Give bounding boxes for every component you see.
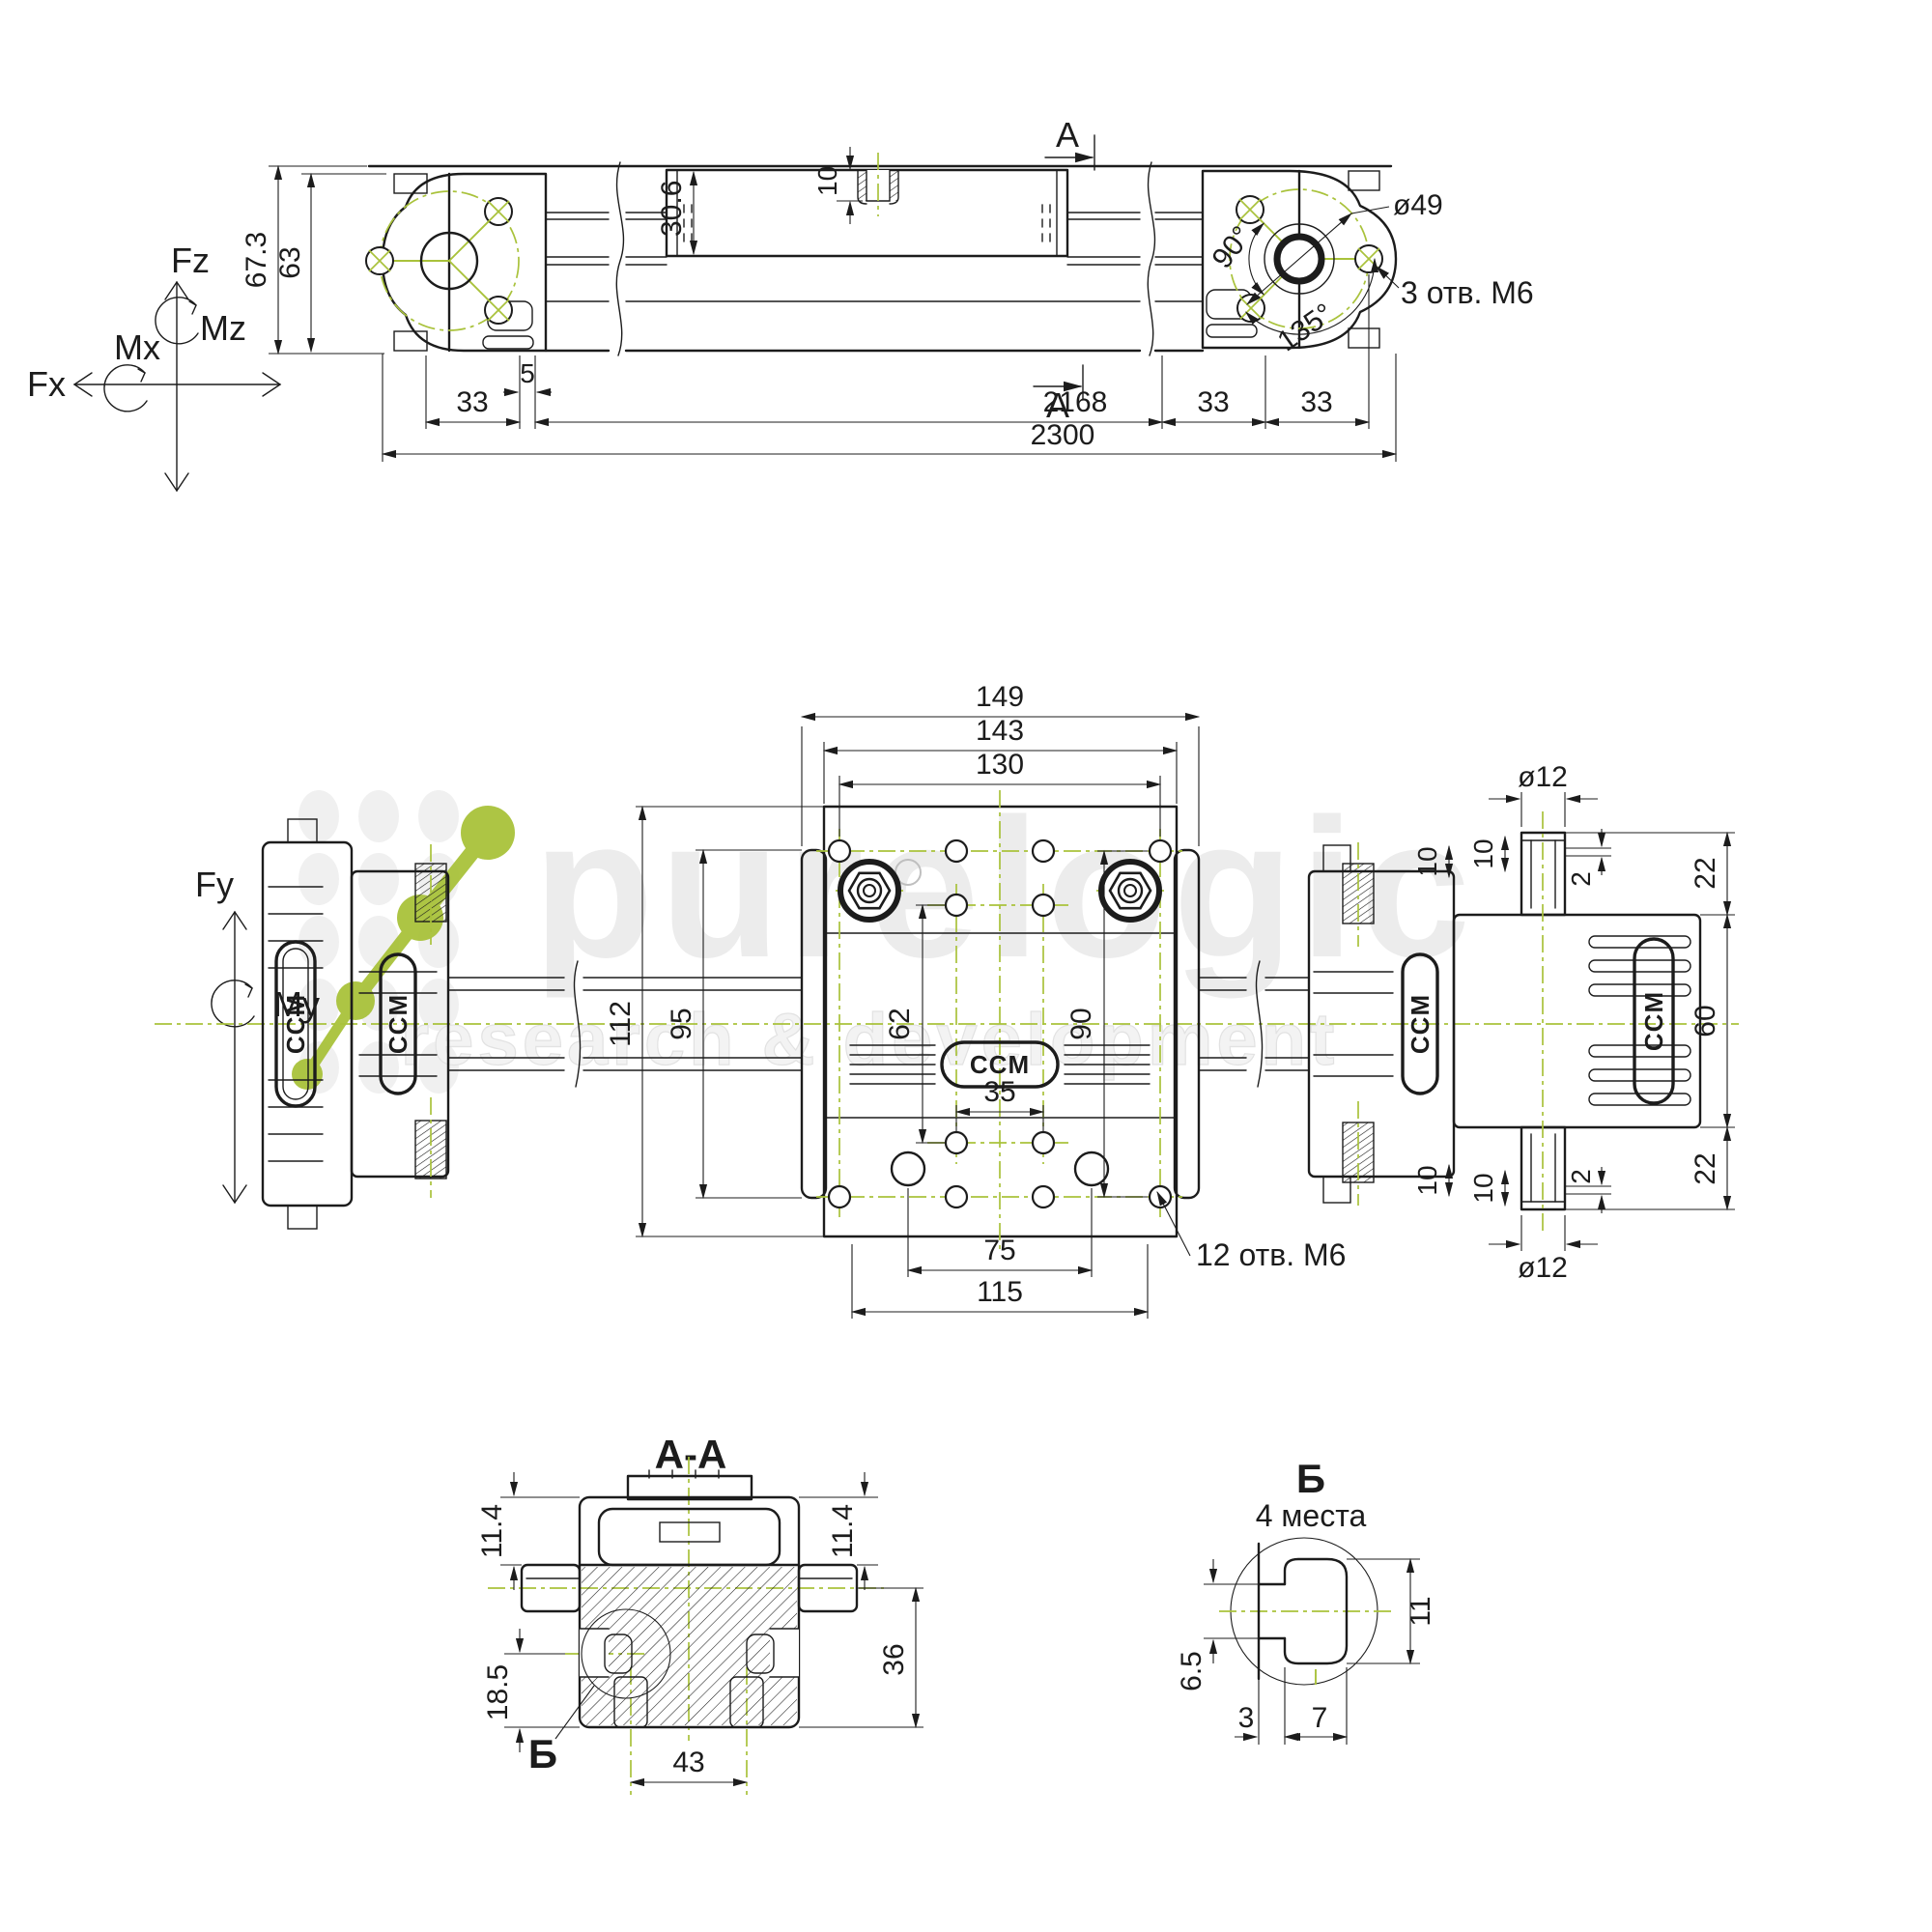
dowel-hole	[1075, 1152, 1108, 1185]
dim-10: 10	[1412, 1165, 1442, 1195]
right-end-cap: 90° 135° ø49 3 отв. М6	[1203, 171, 1534, 358]
ccm-logo-text: CCM	[970, 1050, 1030, 1079]
dim-115: 115	[977, 1276, 1023, 1308]
dim-2: 2	[1566, 871, 1596, 887]
dim-3: 3	[1238, 1702, 1255, 1734]
dim-offset-33: 33	[456, 386, 488, 418]
dim-10: 10	[1468, 838, 1498, 868]
dim-port-dia-bottom: ø12	[1518, 1252, 1568, 1284]
note-end-holes: 3 отв. М6	[1401, 275, 1534, 310]
dim-62: 62	[884, 1008, 916, 1039]
dim-port-dia-top: ø12	[1518, 761, 1568, 793]
dim-6-5: 6.5	[1176, 1651, 1207, 1691]
dim-right-33b: 33	[1300, 386, 1332, 418]
detail-b-title: Б	[1296, 1456, 1325, 1501]
dim-43: 43	[672, 1747, 704, 1778]
carriage-side-view: 30.6 10	[656, 147, 1067, 256]
dim-149: 149	[976, 681, 1024, 713]
axis-mz-label: Mz	[200, 308, 246, 348]
section-aa: A-A Б 11.4 11.4	[476, 1432, 923, 1795]
dim-18-5: 18.5	[482, 1664, 514, 1720]
dim-95: 95	[666, 1008, 697, 1039]
watermark-brand: purelogic	[533, 778, 1477, 999]
dim-11-4-right: 11.4	[827, 1504, 859, 1558]
axis-fx-label: Fx	[27, 364, 66, 404]
dim-overall-height: 67.3	[241, 232, 272, 288]
hex-bolt	[840, 862, 898, 920]
axis-fy-label: Fy	[195, 865, 234, 904]
dim-total-length: 2300	[1031, 419, 1095, 451]
left-end-cap	[366, 174, 546, 351]
dim-143: 143	[976, 715, 1024, 747]
top-view: Fz Mz Mx Fx	[27, 115, 1534, 491]
dim-thread-depth: 10	[812, 166, 842, 196]
section-marker-a-top: A	[1045, 115, 1094, 170]
dim-11: 11	[1405, 1596, 1436, 1626]
mx-arc-icon	[104, 365, 147, 412]
dim-7: 7	[1312, 1702, 1328, 1734]
drawing-canvas: purelogic research & development Fz Mz M…	[0, 0, 1932, 1932]
dim-carriage-height: 30.6	[656, 181, 688, 237]
dim-bolt-circle: ø49	[1393, 189, 1443, 221]
hex-bolt	[1101, 862, 1159, 920]
section-letter: A	[1056, 115, 1079, 155]
watermark-tagline: research & development	[401, 999, 1339, 1081]
detail-b-dimensions: 6.5 11 3 7	[1176, 1559, 1436, 1745]
detail-b: Б 4 места 6.5 11 3 7	[1176, 1456, 1436, 1745]
dowel-hole	[892, 1152, 924, 1185]
dim-offset-5: 5	[520, 358, 535, 388]
axis-fz-label: Fz	[171, 241, 210, 280]
dim-75: 75	[983, 1235, 1015, 1266]
dim-36: 36	[878, 1643, 910, 1675]
dim-right-33a: 33	[1197, 386, 1229, 418]
axis-mx-label: Mx	[114, 327, 160, 367]
ccm-logo-text: CCM	[281, 994, 310, 1054]
break-line	[616, 162, 623, 355]
section-aa-title: A-A	[655, 1432, 727, 1477]
dim-22: 22	[1690, 1152, 1721, 1184]
dim-22: 22	[1690, 857, 1721, 889]
height-dimensions: 67.3 63	[241, 166, 386, 354]
dim-11-4-left: 11.4	[476, 1504, 508, 1558]
ccm-logo-text: CCM	[1639, 991, 1668, 1051]
dim-130: 130	[976, 749, 1024, 781]
detail-mark-label: Б	[528, 1731, 557, 1776]
dim-90: 90	[1065, 1008, 1097, 1039]
my-arc-icon	[212, 980, 254, 1027]
ccm-logo-text: CCM	[1406, 994, 1435, 1054]
dim-2: 2	[1566, 1169, 1596, 1184]
dim-60: 60	[1690, 1005, 1721, 1037]
watermark: purelogic research & development	[292, 778, 1476, 1094]
dim-35: 35	[983, 1076, 1015, 1108]
dim-stroke: 2168	[1043, 386, 1108, 418]
detail-b-subtitle: 4 места	[1256, 1498, 1367, 1533]
dim-112: 112	[605, 1001, 637, 1047]
note-plate-holes: 12 отв. М6	[1196, 1237, 1346, 1272]
dim-10: 10	[1468, 1173, 1498, 1203]
dim-angle-90: 90°	[1207, 220, 1259, 274]
ccm-logo-text: CCM	[384, 994, 412, 1054]
break-line	[1148, 162, 1154, 355]
dim-10: 10	[1412, 846, 1442, 876]
dim-body-height: 63	[274, 246, 306, 278]
